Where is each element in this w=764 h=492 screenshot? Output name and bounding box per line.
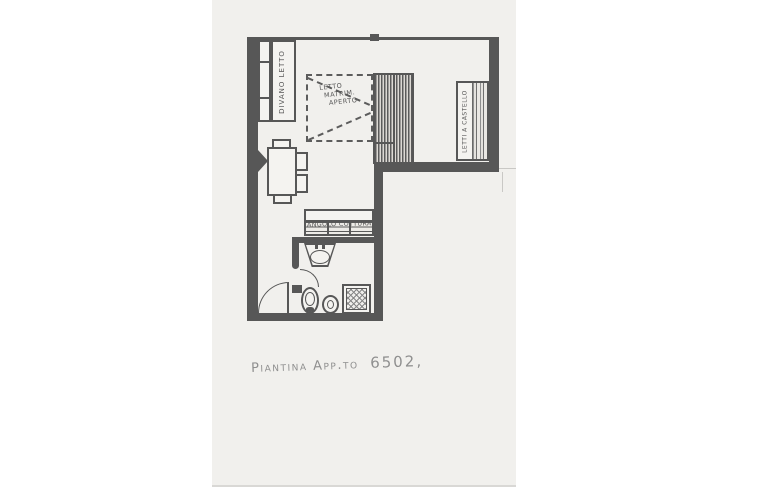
bunk-beds: LETTI A CASTELLO bbox=[456, 81, 489, 161]
bidet-bowl bbox=[327, 300, 334, 309]
plan-caption-number: 6502 bbox=[370, 352, 417, 372]
sofa-bed-label: DIVANO LETTO bbox=[278, 50, 286, 114]
pencil-guide-horizontal bbox=[499, 168, 516, 169]
wall-left bbox=[247, 37, 258, 321]
plan-caption-flourish: , bbox=[416, 352, 423, 370]
wardrobe-divider-vertical bbox=[393, 75, 395, 162]
toilet bbox=[301, 287, 319, 314]
washbasin-tap bbox=[322, 245, 325, 249]
scanned-floor-plan-sheet: DIVANO LETTO LETTO MATRIM. APERTO LETTI … bbox=[0, 0, 764, 492]
bunk-beds-label-area: LETTI A CASTELLO bbox=[458, 83, 472, 159]
washbasin-bowl bbox=[310, 250, 330, 264]
wardrobe bbox=[373, 73, 414, 164]
sofa-bed: DIVANO LETTO bbox=[271, 40, 296, 122]
dining-table bbox=[267, 147, 297, 196]
wall-right bbox=[489, 37, 499, 172]
wall-inner-right bbox=[374, 162, 383, 321]
paper-bottom-edge bbox=[212, 485, 516, 487]
pencil-guide-vertical bbox=[502, 172, 503, 192]
kitchenette-label: ANGOLO COTTURA bbox=[307, 219, 372, 230]
wall-bottom bbox=[247, 313, 383, 321]
wall-top-tick bbox=[370, 34, 379, 41]
fold-out-bed-label: LETTO MATRIM. APERTO bbox=[319, 80, 358, 108]
kitchenette-label-band: ANGOLO COTTURA bbox=[306, 211, 372, 222]
washbasin-tap bbox=[315, 245, 318, 249]
entry-door-leaf bbox=[287, 283, 289, 314]
toilet-bowl bbox=[305, 292, 315, 306]
closet-divider bbox=[260, 97, 269, 99]
toilet-hinge bbox=[306, 307, 314, 312]
shower-tray bbox=[342, 284, 371, 314]
closet-divider bbox=[260, 61, 269, 63]
bunk-beds-mattress-streaks bbox=[472, 83, 487, 159]
wall-bathroom-left bbox=[292, 237, 299, 269]
wardrobe-divider-horizontal bbox=[375, 142, 393, 144]
bunk-beds-label: LETTI A CASTELLO bbox=[462, 84, 469, 160]
closet-column bbox=[258, 40, 271, 122]
kitchenette: ANGOLO COTTURA bbox=[304, 209, 374, 236]
shower-tray-pattern bbox=[346, 288, 367, 310]
wall-bathroom-top bbox=[292, 237, 374, 243]
bidet bbox=[322, 295, 339, 314]
